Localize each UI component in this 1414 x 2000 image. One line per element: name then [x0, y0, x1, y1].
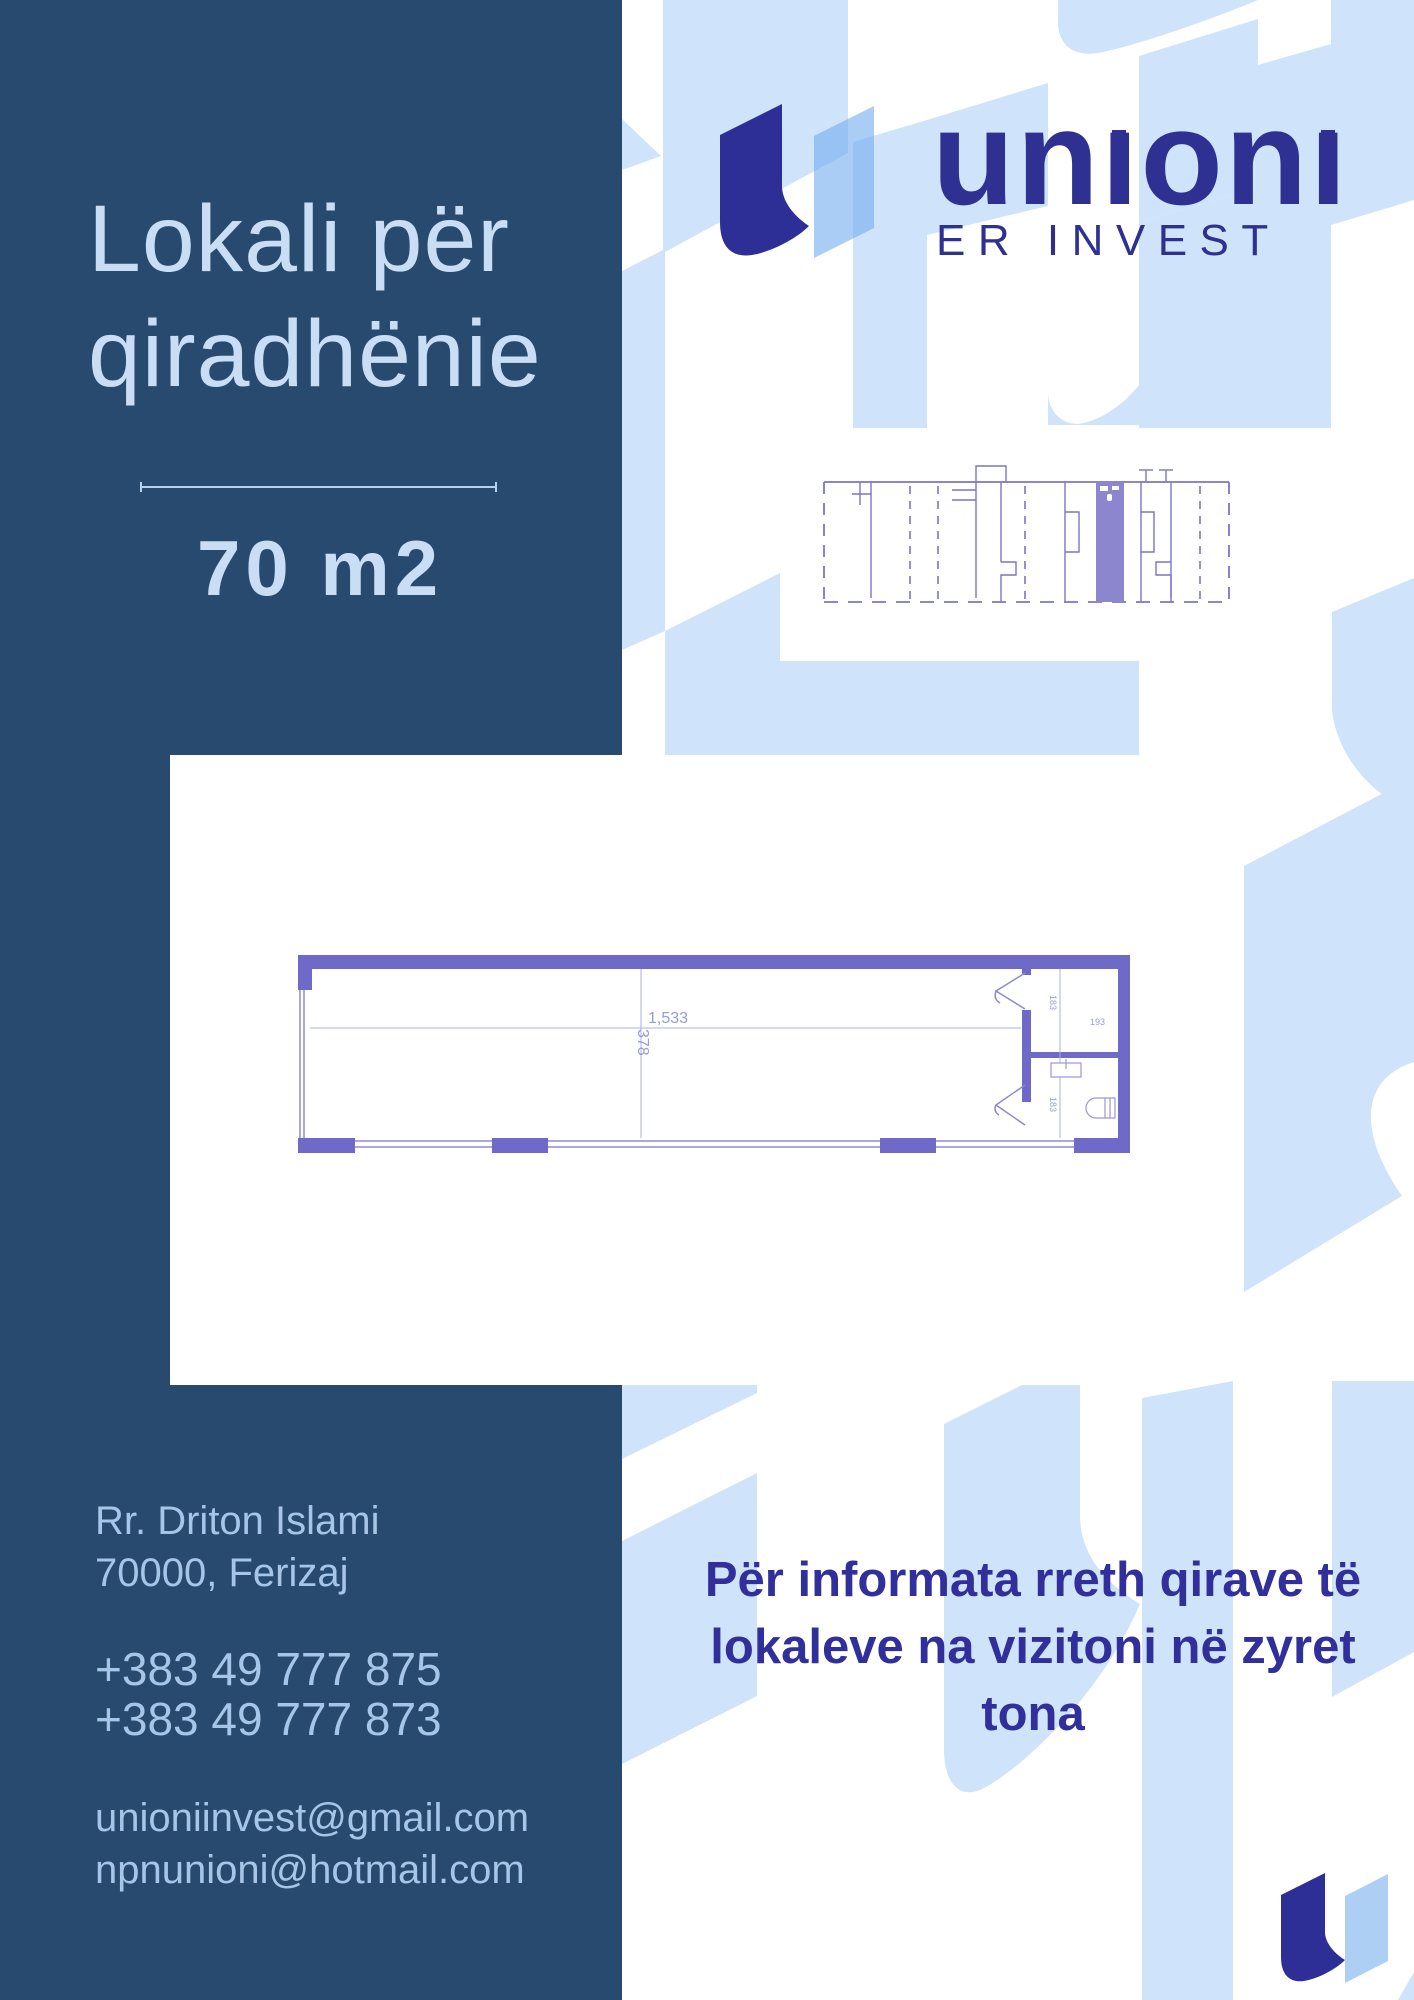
svg-text:378: 378: [634, 1029, 651, 1056]
svg-text:1,533: 1,533: [648, 1010, 688, 1027]
svg-text:183: 183: [1048, 1097, 1058, 1112]
svg-text:193: 193: [1090, 1017, 1105, 1027]
svg-text:183: 183: [1048, 995, 1058, 1010]
